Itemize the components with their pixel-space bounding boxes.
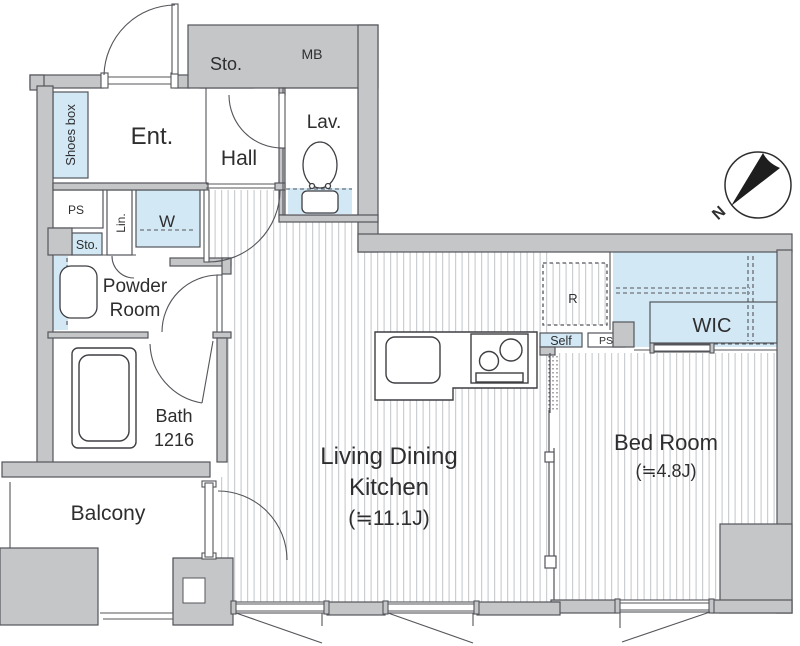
label-lav: Lav. (307, 112, 342, 133)
linen-door (112, 256, 134, 278)
label-powder-1: Powder (103, 276, 168, 297)
powder-room-door (162, 275, 222, 332)
compass-north-label: N (709, 203, 729, 223)
ldk-window-1 (231, 601, 329, 643)
bathtub (72, 348, 136, 448)
label-washer: W (159, 212, 175, 231)
toilet-bowl (303, 142, 337, 188)
label-lin: Lin. (114, 213, 128, 232)
wash-basin (60, 266, 97, 318)
bath-door (150, 341, 213, 403)
label-bath-1: Bath (155, 406, 192, 426)
stove-burner-left (480, 352, 499, 371)
label-ldk-size: (≒11.1J) (348, 507, 429, 530)
label-powder-2: Room (110, 300, 161, 321)
label-ldk-2: Kitchen (349, 474, 429, 501)
stove-burner-right (500, 339, 522, 361)
toilet (302, 142, 338, 213)
label-ldk-1: Living Dining (320, 443, 457, 470)
label-sto-top: Sto. (210, 54, 242, 74)
floor-plan-page: N Ent. Hall Lav. Sto. MB Shoes box PS Li… (0, 0, 800, 646)
entrance-door (101, 4, 178, 88)
step-notch (183, 578, 205, 603)
label-balcony: Balcony (71, 502, 146, 525)
stove-grill (476, 373, 523, 382)
label-bedroom: Bed Room (614, 430, 718, 455)
floor-plan-canvas: N Ent. Hall Lav. Sto. MB Shoes box PS Li… (0, 0, 800, 646)
label-sto-small: Sto. (76, 238, 98, 252)
label-bedroom-size: (≒4.8J) (635, 461, 696, 481)
ldk-window-2 (383, 601, 479, 643)
label-ps2: PS (599, 335, 613, 347)
label-refrigerator: R (568, 291, 577, 306)
wic-opening (650, 343, 714, 353)
compass: N (709, 152, 791, 224)
bedroom-window (615, 599, 714, 642)
kitchen-sink (386, 337, 440, 383)
label-ent: Ent. (131, 123, 174, 150)
label-ps: PS (68, 203, 84, 217)
label-shoes-box: Shoes box (63, 104, 78, 166)
label-wic: WIC (693, 315, 732, 337)
label-mb: MB (302, 46, 323, 62)
label-shelf: Self (550, 334, 572, 348)
toilet-tank (302, 191, 338, 213)
label-hall: Hall (221, 147, 257, 170)
label-bath-2: 1216 (154, 430, 194, 450)
